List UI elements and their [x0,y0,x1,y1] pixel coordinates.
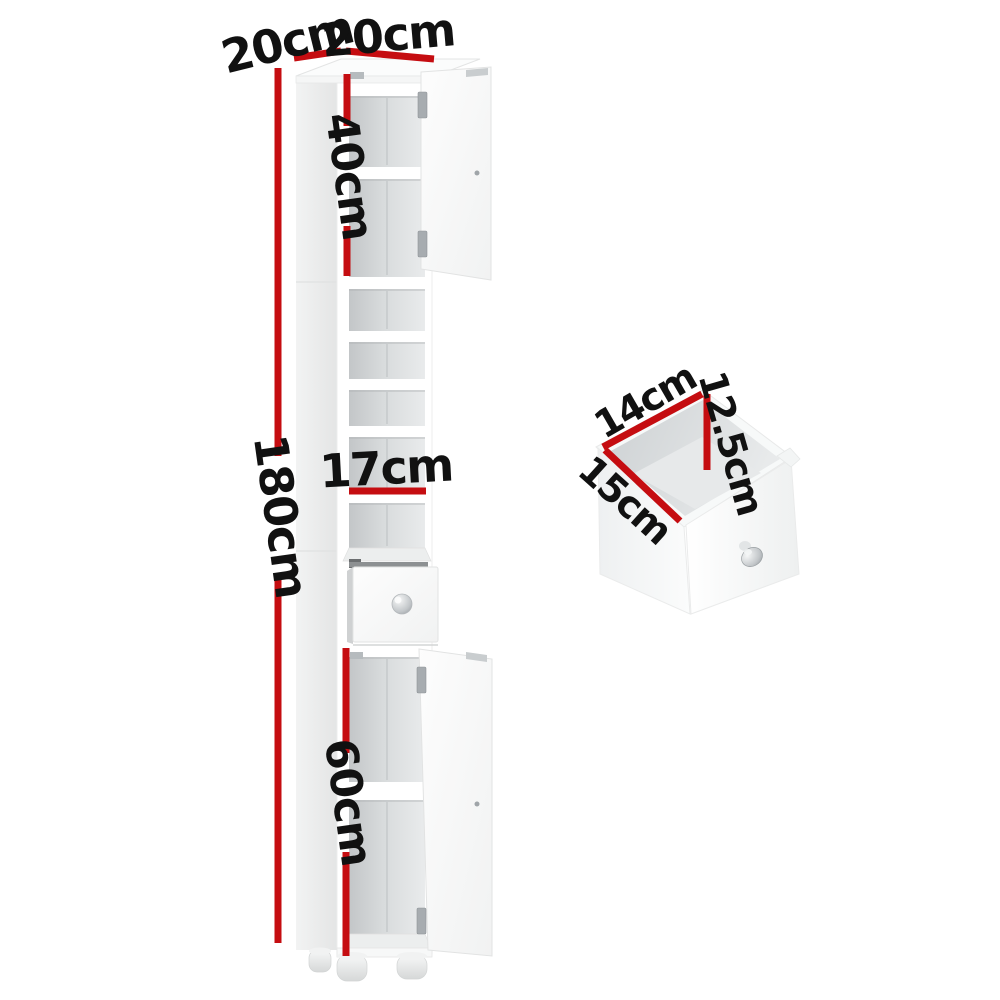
diagram-canvas: 20cm 20cm 40cm 180cm 17cm 60cm 14cm 12.5… [0,0,1000,1000]
carcass-hinge-plate-bottom [350,652,363,659]
cabinet-bottom-door [417,649,492,956]
bottom-door-panel [419,649,492,956]
bottom-door-hinge-upper [417,667,426,693]
cabinet-illustration [296,59,492,981]
bottom-door-screw [475,802,480,807]
carcass-hinge-plate-top [350,72,364,79]
cabinet-middle-drawer [347,559,438,645]
top-door-hinge-upper [418,92,427,118]
top-door-hinge-lower [418,231,427,257]
dim-label-top-width: 20cm [319,2,456,67]
bottom-door-hinge-lower [417,908,426,934]
drawer-knob-icon [392,594,412,614]
top-door-panel [421,67,491,280]
cabinet-top-edge [296,76,435,83]
product-dimension-diagram: 20cm 20cm 40cm 180cm 17cm 60cm 14cm 12.5… [0,0,1000,1000]
top-door-screw [475,171,480,176]
cabinet-top-door [418,67,491,280]
dim-label-shelf-width: 17cm [318,438,454,499]
